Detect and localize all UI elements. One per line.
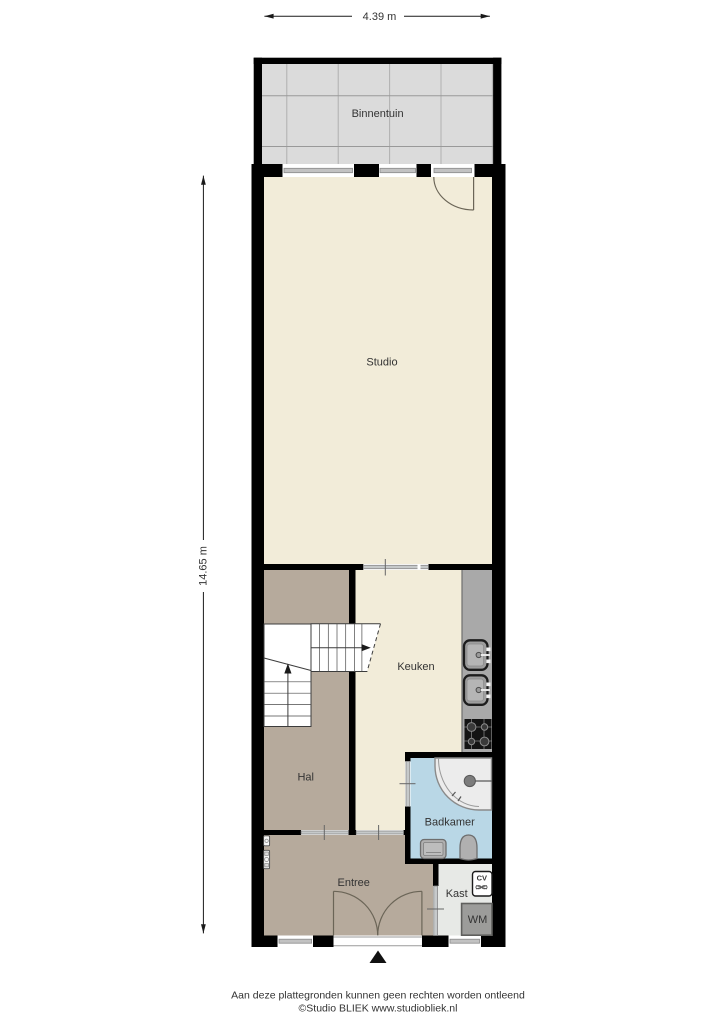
svg-text:WM: WM — [468, 914, 488, 926]
svg-text:Entree: Entree — [337, 877, 369, 889]
svg-text:14.65 m: 14.65 m — [197, 546, 209, 586]
svg-text:Studio: Studio — [366, 357, 397, 369]
svg-text:Keuken: Keuken — [397, 661, 434, 673]
svg-text:©Studio BLIEK www.studiobliek.: ©Studio BLIEK www.studiobliek.nl — [299, 1003, 458, 1015]
svg-text:Badkamer: Badkamer — [425, 817, 475, 829]
svg-text:CV: CV — [477, 874, 487, 883]
svg-text:Kast: Kast — [446, 888, 468, 900]
svg-text:4.39 m: 4.39 m — [363, 11, 397, 23]
svg-text:Aan deze plattegronden kunnen: Aan deze plattegronden kunnen geen recht… — [231, 990, 525, 1002]
svg-text:Hal: Hal — [297, 772, 314, 784]
svg-text:Binnentuin: Binnentuin — [352, 108, 404, 120]
